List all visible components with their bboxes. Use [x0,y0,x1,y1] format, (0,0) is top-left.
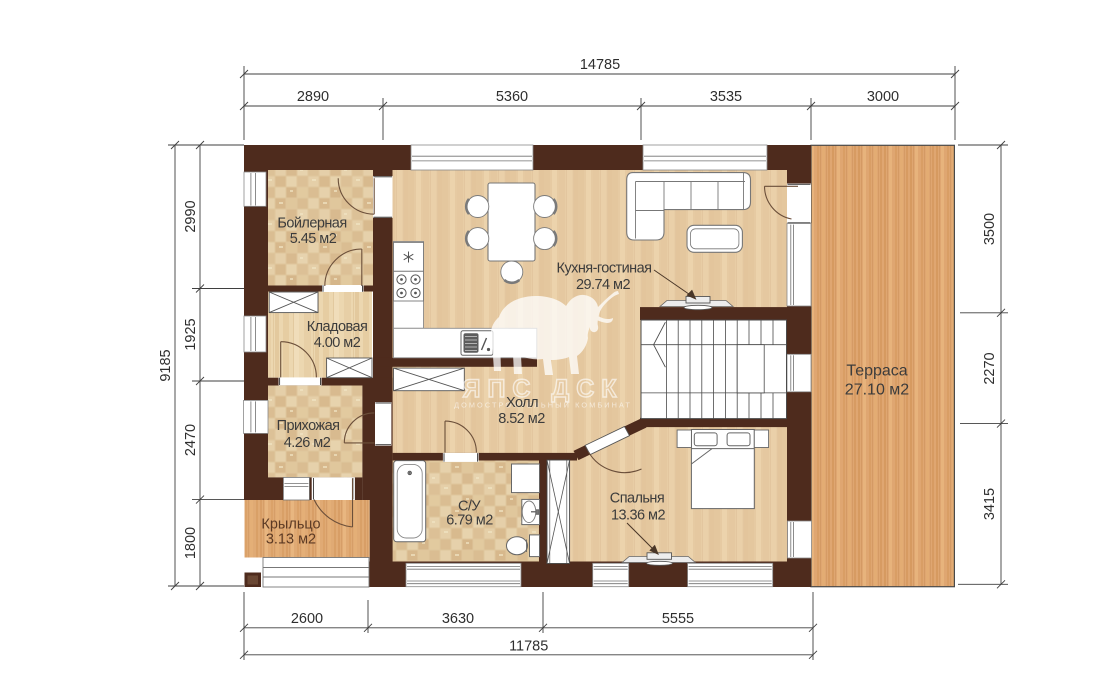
svg-text:2890: 2890 [297,89,329,105]
svg-text:4.26 м2: 4.26 м2 [284,435,331,451]
svg-text:5360: 5360 [496,89,528,105]
svg-text:ЯПС ДСК: ЯПС ДСК [462,375,623,403]
svg-text:3415: 3415 [982,488,998,520]
svg-text:3.13 м2: 3.13 м2 [266,532,316,548]
svg-text:3535: 3535 [710,89,742,105]
svg-text:6.79 м2: 6.79 м2 [446,513,493,529]
svg-text:14785: 14785 [580,57,620,73]
svg-text:11785: 11785 [509,639,548,655]
svg-text:1925: 1925 [183,318,199,350]
svg-text:8.52 м2: 8.52 м2 [498,411,545,427]
svg-text:2470: 2470 [183,424,199,456]
svg-text:Бойлерная: Бойлерная [277,216,346,232]
svg-text:27.10 м2: 27.10 м2 [845,382,909,399]
svg-text:2990: 2990 [183,200,199,232]
svg-text:1800: 1800 [183,527,199,559]
svg-text:2600: 2600 [291,611,323,627]
svg-text:Терраса: Терраса [846,363,907,380]
svg-text:4.00 м2: 4.00 м2 [314,335,361,351]
svg-text:5.45 м2: 5.45 м2 [290,231,337,247]
svg-text:5555: 5555 [662,611,694,627]
svg-text:Крыльцо: Крыльцо [261,517,320,533]
svg-text:Холл: Холл [506,395,538,411]
svg-text:Кухня-гостиная: Кухня-гостиная [557,261,652,277]
svg-text:3500: 3500 [982,213,998,245]
svg-text:Кладовая: Кладовая [307,319,368,335]
svg-text:Прихожая: Прихожая [277,418,340,434]
svg-text:13.36 м2: 13.36 м2 [611,508,665,524]
svg-text:29.74 м2: 29.74 м2 [576,277,630,293]
svg-text:ДОМОСТРОИТЕЛЬНЫЙ КОМБИНАТ: ДОМОСТРОИТЕЛЬНЫЙ КОМБИНАТ [454,401,632,410]
svg-text:2270: 2270 [982,352,998,384]
svg-text:Спальня: Спальня [610,491,664,507]
svg-text:3000: 3000 [867,89,899,105]
svg-text:3630: 3630 [442,611,474,627]
svg-text:9185: 9185 [158,349,174,381]
